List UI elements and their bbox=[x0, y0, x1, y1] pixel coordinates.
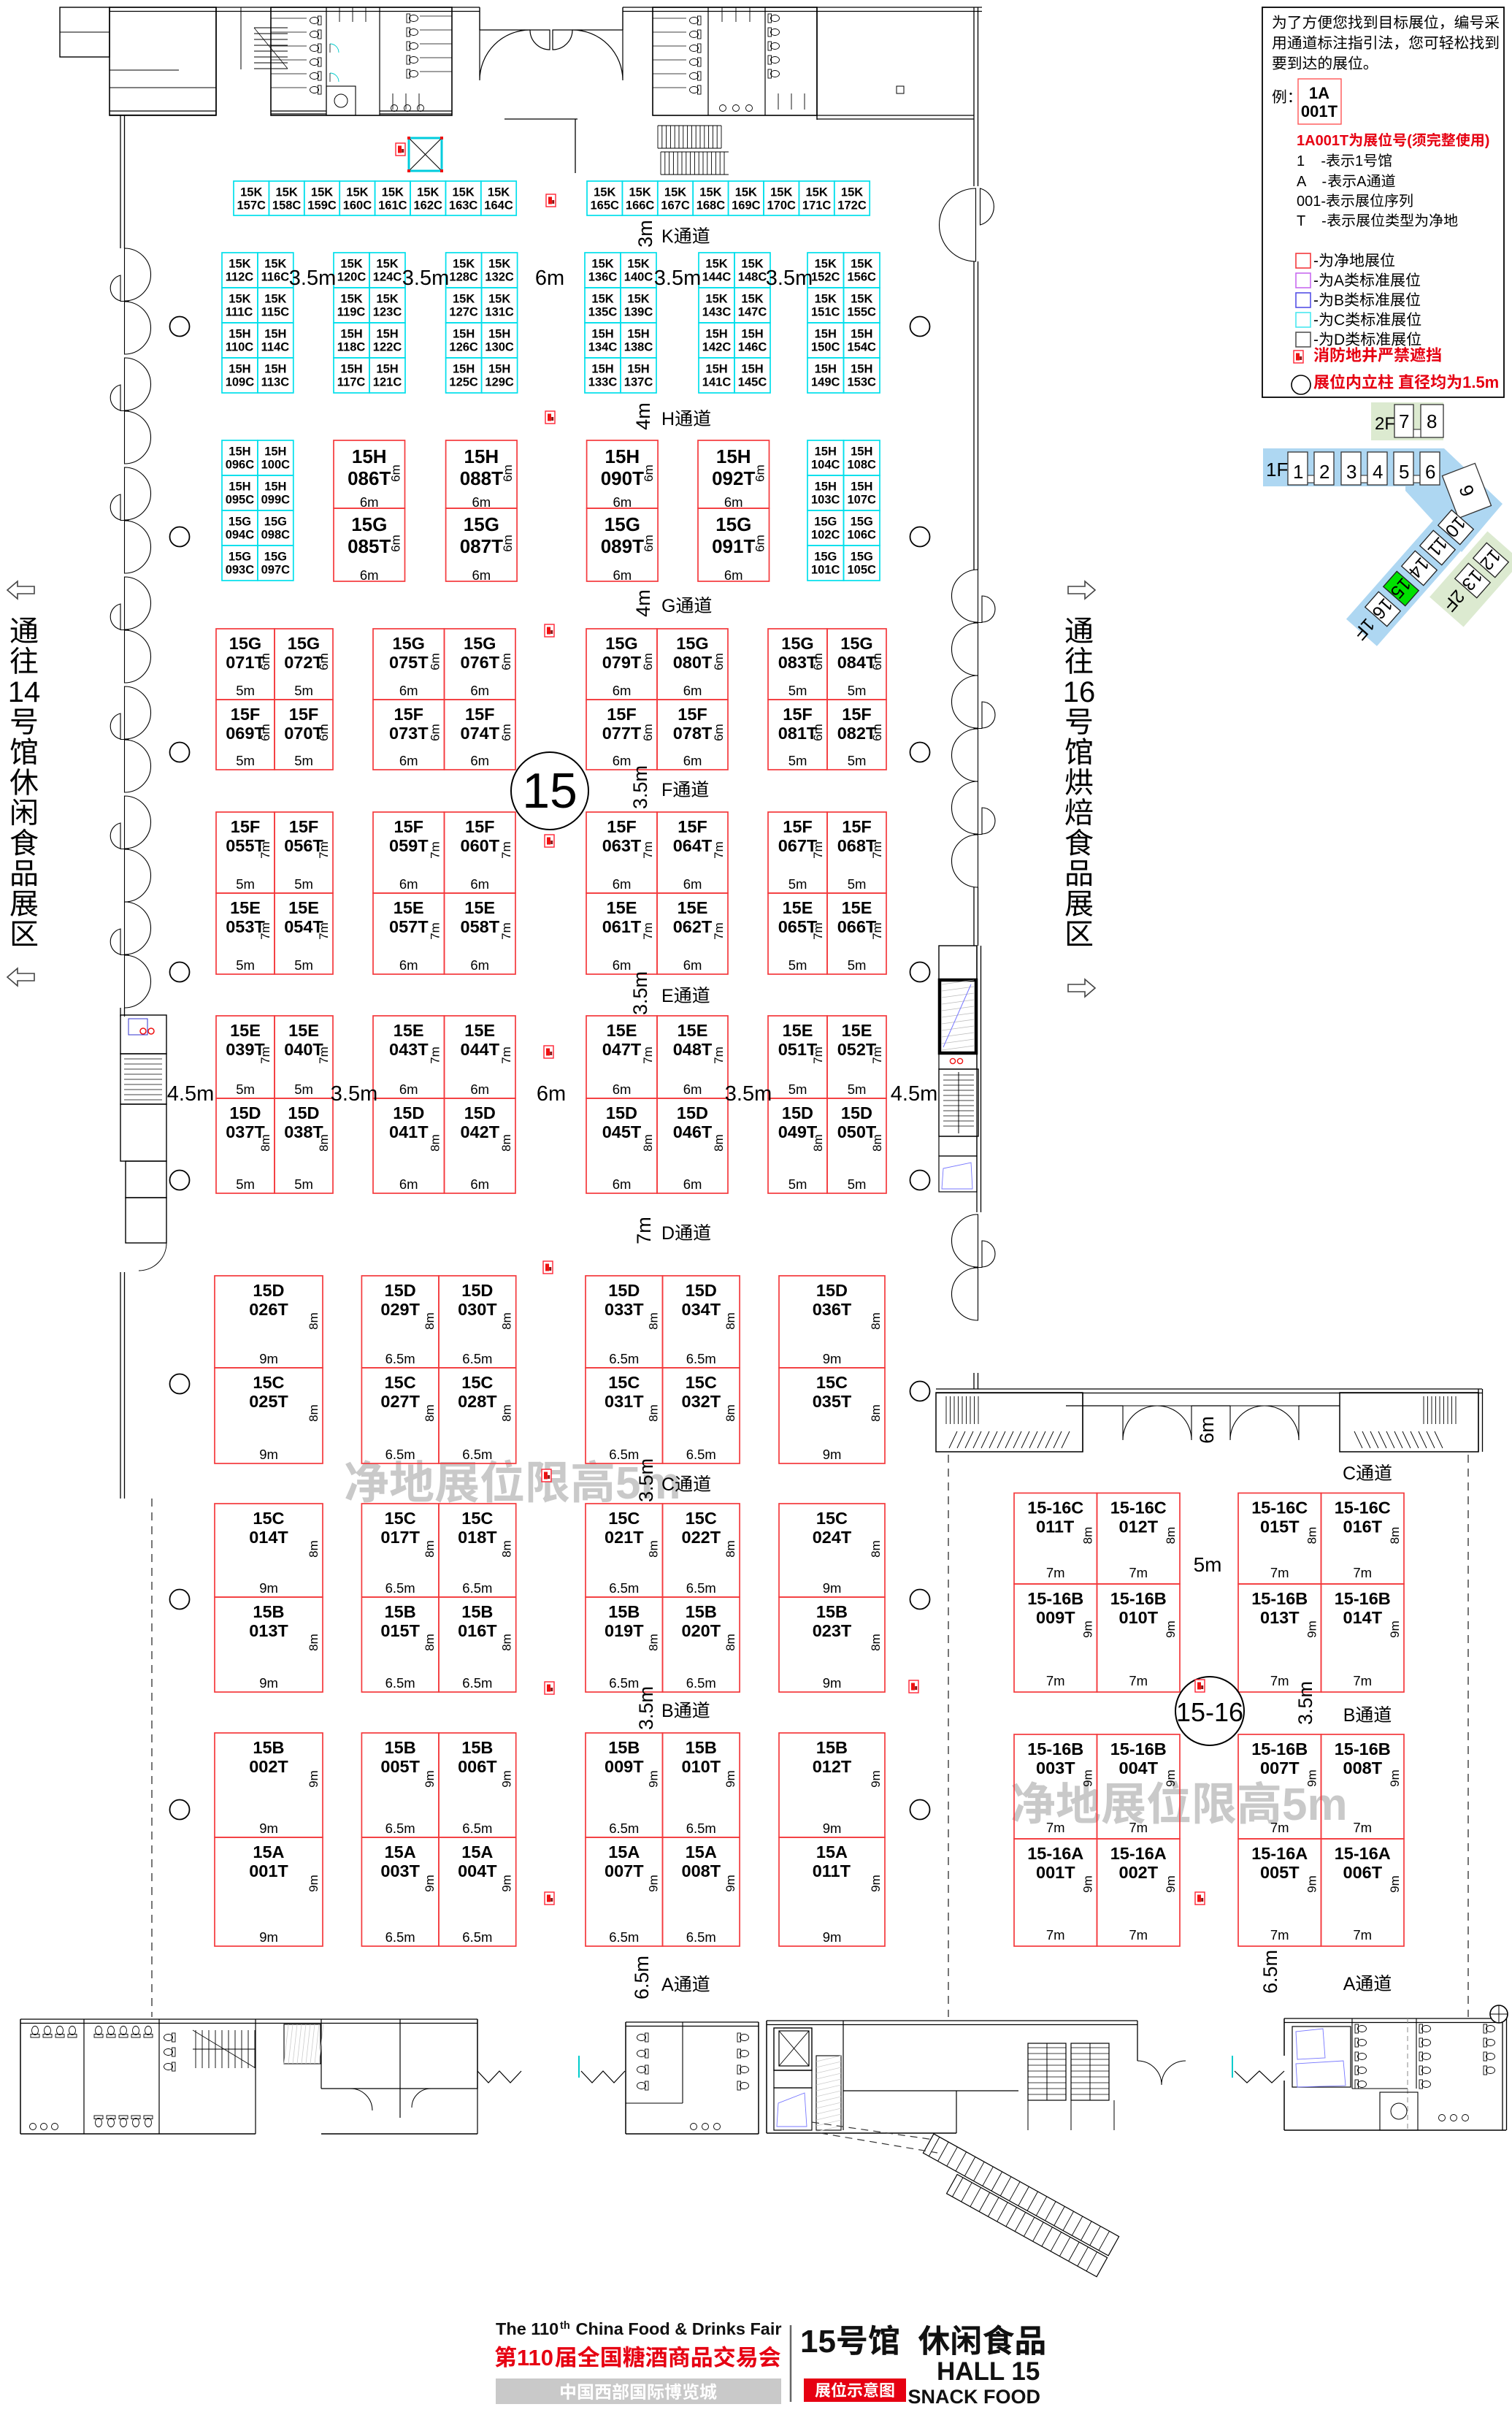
svg-text:5m: 5m bbox=[294, 753, 313, 768]
svg-text:6m: 6m bbox=[613, 1176, 632, 1192]
svg-text:123C: 123C bbox=[373, 306, 402, 319]
svg-text:15K: 15K bbox=[627, 293, 649, 306]
svg-text:9m: 9m bbox=[1305, 1875, 1319, 1893]
svg-text:8m: 8m bbox=[869, 1540, 883, 1558]
svg-text:7m: 7m bbox=[641, 922, 655, 940]
svg-text:137C: 137C bbox=[624, 376, 653, 389]
svg-text:B: B bbox=[661, 1701, 674, 1721]
svg-text:021T: 021T bbox=[605, 1528, 644, 1547]
svg-text:098C: 098C bbox=[261, 529, 291, 542]
svg-text:168C: 168C bbox=[696, 199, 726, 213]
svg-text:028T: 028T bbox=[458, 1392, 497, 1411]
svg-text:15-16A: 15-16A bbox=[1251, 1844, 1308, 1863]
svg-text:8m: 8m bbox=[647, 1540, 661, 1558]
svg-text:-: - bbox=[1313, 292, 1319, 309]
svg-text:6m: 6m bbox=[399, 683, 418, 698]
svg-text:1F: 1F bbox=[1266, 459, 1288, 481]
svg-text:4: 4 bbox=[1373, 461, 1383, 483]
svg-text:109C: 109C bbox=[226, 376, 255, 389]
svg-text:7m: 7m bbox=[1046, 1565, 1065, 1580]
svg-text:15C: 15C bbox=[686, 1373, 717, 1392]
svg-text:9m: 9m bbox=[259, 1675, 278, 1691]
svg-text:117C: 117C bbox=[337, 376, 366, 389]
svg-text:6.5m: 6.5m bbox=[385, 1675, 415, 1691]
svg-text:15B: 15B bbox=[461, 1602, 493, 1621]
svg-text:9m: 9m bbox=[823, 1447, 842, 1462]
svg-text:15D: 15D bbox=[782, 1103, 813, 1122]
svg-text:147C: 147C bbox=[738, 306, 767, 319]
svg-text:018T: 018T bbox=[458, 1528, 497, 1547]
svg-text:15E: 15E bbox=[842, 898, 872, 917]
svg-text:045T: 045T bbox=[602, 1122, 642, 1141]
svg-text:013T: 013T bbox=[249, 1621, 288, 1640]
svg-text:143C: 143C bbox=[702, 306, 732, 319]
svg-text:1A: 1A bbox=[1309, 84, 1329, 102]
svg-text:6m: 6m bbox=[613, 1082, 632, 1097]
svg-text:15G: 15G bbox=[229, 634, 261, 653]
svg-text:th: th bbox=[560, 2320, 570, 2332]
svg-text:15C: 15C bbox=[608, 1373, 640, 1392]
svg-text:15F: 15F bbox=[678, 705, 707, 724]
svg-text:15G: 15G bbox=[605, 634, 637, 653]
svg-text:C: C bbox=[1334, 312, 1345, 329]
svg-text:114C: 114C bbox=[261, 341, 290, 354]
svg-text:7m: 7m bbox=[1353, 1820, 1372, 1835]
svg-text:156C: 156C bbox=[848, 271, 877, 284]
svg-text:15D: 15D bbox=[253, 1281, 284, 1300]
svg-text:171C: 171C bbox=[802, 199, 832, 213]
svg-text:8m: 8m bbox=[1164, 1527, 1178, 1545]
svg-text:130C: 130C bbox=[485, 341, 514, 354]
svg-text:15C: 15C bbox=[608, 1509, 640, 1528]
svg-text:C: C bbox=[661, 1474, 675, 1495]
svg-text:3.5m: 3.5m bbox=[1294, 1681, 1316, 1725]
svg-text:157C: 157C bbox=[237, 199, 266, 213]
svg-text:8m: 8m bbox=[307, 1540, 321, 1558]
svg-text:8m: 8m bbox=[724, 1540, 737, 1558]
svg-text:6.5m: 6.5m bbox=[462, 1580, 492, 1596]
svg-text:6m: 6m bbox=[501, 464, 515, 482]
svg-text:5m: 5m bbox=[294, 957, 313, 973]
svg-text:5m: 5m bbox=[236, 753, 255, 768]
svg-text:15A: 15A bbox=[253, 1842, 284, 1861]
svg-text:15E: 15E bbox=[230, 898, 261, 917]
svg-text:15K: 15K bbox=[340, 258, 362, 271]
svg-text:7m: 7m bbox=[499, 841, 513, 859]
svg-text:15K: 15K bbox=[591, 293, 613, 306]
svg-text:103C: 103C bbox=[811, 494, 840, 507]
svg-text:7m: 7m bbox=[1270, 1565, 1289, 1580]
svg-text:075T: 075T bbox=[389, 653, 429, 672]
svg-text:6m: 6m bbox=[613, 753, 632, 768]
svg-text:007T: 007T bbox=[605, 1861, 644, 1880]
svg-text:15K: 15K bbox=[264, 293, 286, 306]
svg-text:7m: 7m bbox=[1270, 1673, 1289, 1688]
svg-text:15K: 15K bbox=[382, 186, 404, 199]
svg-text:15H: 15H bbox=[229, 328, 250, 341]
svg-text:8m: 8m bbox=[500, 1634, 514, 1651]
svg-text:15G: 15G bbox=[676, 634, 708, 653]
svg-text:15K: 15K bbox=[311, 186, 333, 199]
svg-text:15-16A: 15-16A bbox=[1335, 1844, 1391, 1863]
svg-text:A: A bbox=[1356, 174, 1367, 190]
svg-text:15K: 15K bbox=[591, 258, 613, 271]
svg-text:15G: 15G bbox=[814, 516, 837, 529]
svg-text:6m: 6m bbox=[389, 535, 403, 552]
svg-text:112C: 112C bbox=[226, 271, 254, 284]
svg-text:5m: 5m bbox=[294, 1082, 313, 1097]
svg-text:159C: 159C bbox=[307, 199, 337, 213]
svg-text:073T: 073T bbox=[389, 724, 429, 743]
svg-text:9m: 9m bbox=[1305, 1769, 1319, 1787]
svg-text:076T: 076T bbox=[461, 653, 500, 672]
svg-text:6m: 6m bbox=[811, 724, 825, 741]
svg-text:8m: 8m bbox=[500, 1404, 514, 1422]
svg-text:141C: 141C bbox=[702, 376, 732, 389]
svg-text:119C: 119C bbox=[337, 306, 366, 319]
svg-text:15B: 15B bbox=[686, 1602, 717, 1621]
svg-text:15-16B: 15-16B bbox=[1110, 1740, 1167, 1758]
svg-text:113C: 113C bbox=[261, 376, 290, 389]
svg-text:HALL 15: HALL 15 bbox=[937, 2357, 1040, 2386]
svg-text:004T: 004T bbox=[458, 1861, 497, 1880]
svg-text:15E: 15E bbox=[842, 1021, 872, 1040]
svg-text:15H: 15H bbox=[229, 445, 250, 459]
svg-text:019T: 019T bbox=[605, 1621, 644, 1640]
svg-text:060T: 060T bbox=[461, 836, 500, 855]
svg-text:6.5m: 6.5m bbox=[686, 1580, 716, 1596]
svg-text:8m: 8m bbox=[499, 1134, 513, 1152]
svg-text:086T: 086T bbox=[348, 467, 391, 489]
svg-text:15K: 15K bbox=[488, 293, 510, 306]
svg-text:15E: 15E bbox=[464, 1021, 495, 1040]
svg-text:003T: 003T bbox=[1036, 1758, 1075, 1777]
svg-text:020T: 020T bbox=[682, 1621, 721, 1640]
svg-text:15D: 15D bbox=[288, 1103, 319, 1122]
svg-text:15G: 15G bbox=[264, 516, 287, 529]
svg-text:7m: 7m bbox=[870, 1046, 884, 1064]
svg-text:15F: 15F bbox=[783, 705, 813, 724]
svg-text:6.5m: 6.5m bbox=[686, 1675, 716, 1691]
svg-text:T -: T - bbox=[1297, 213, 1327, 229]
svg-text:7m: 7m bbox=[712, 1046, 726, 1064]
svg-text:15F: 15F bbox=[231, 705, 261, 724]
svg-text:079T: 079T bbox=[602, 653, 642, 672]
svg-text:166C: 166C bbox=[626, 199, 655, 213]
svg-text:15B: 15B bbox=[385, 1738, 416, 1757]
svg-text:6m: 6m bbox=[811, 653, 825, 670]
svg-text:5m: 5m bbox=[294, 1176, 313, 1192]
svg-text:9m: 9m bbox=[500, 1875, 514, 1892]
svg-text:6m: 6m bbox=[317, 653, 331, 670]
svg-text:15H: 15H bbox=[591, 363, 613, 376]
svg-text:6.5m: 6.5m bbox=[385, 1580, 415, 1596]
svg-text:6: 6 bbox=[1425, 461, 1435, 483]
svg-text:6m: 6m bbox=[641, 724, 655, 741]
svg-text:9m: 9m bbox=[823, 1675, 842, 1691]
svg-text:15C: 15C bbox=[253, 1509, 284, 1528]
svg-text:15-16C: 15-16C bbox=[1335, 1499, 1391, 1517]
svg-text:032T: 032T bbox=[682, 1392, 721, 1411]
svg-text:064T: 064T bbox=[673, 836, 713, 855]
svg-text:7m: 7m bbox=[811, 1046, 825, 1064]
svg-text:042T: 042T bbox=[461, 1122, 500, 1141]
svg-text:15G: 15G bbox=[229, 516, 251, 529]
svg-text:7m: 7m bbox=[641, 1046, 655, 1064]
svg-text:15F: 15F bbox=[783, 817, 813, 836]
svg-text:6m: 6m bbox=[613, 957, 632, 973]
svg-text:15K: 15K bbox=[340, 293, 362, 306]
svg-text:121C: 121C bbox=[373, 376, 402, 389]
svg-text:15H: 15H bbox=[453, 328, 475, 341]
svg-text:1: 1 bbox=[1355, 153, 1363, 169]
svg-text:14: 14 bbox=[8, 676, 41, 708]
svg-text:15H: 15H bbox=[464, 445, 499, 467]
svg-text:9m: 9m bbox=[500, 1770, 514, 1788]
svg-text:6m: 6m bbox=[499, 653, 513, 670]
svg-text:6.5m: 6.5m bbox=[462, 1675, 492, 1691]
svg-text:G: G bbox=[661, 596, 675, 616]
svg-text:15K: 15K bbox=[741, 293, 763, 306]
svg-text:6.5m: 6.5m bbox=[609, 1580, 639, 1596]
svg-text:15-16B: 15-16B bbox=[1251, 1589, 1308, 1608]
svg-text:1: 1 bbox=[1293, 461, 1303, 483]
svg-text:15K: 15K bbox=[488, 186, 510, 199]
svg-text:7m: 7m bbox=[1353, 1673, 1372, 1688]
svg-text:9m: 9m bbox=[423, 1875, 437, 1892]
svg-text:15E: 15E bbox=[783, 898, 813, 917]
svg-text:138C: 138C bbox=[624, 341, 653, 354]
svg-text:A: A bbox=[1343, 1974, 1356, 1994]
svg-text:7m: 7m bbox=[499, 922, 513, 940]
svg-text:016T: 016T bbox=[1343, 1517, 1383, 1536]
svg-text:010T: 010T bbox=[682, 1757, 721, 1776]
svg-text:9m: 9m bbox=[647, 1770, 661, 1788]
svg-text:15E: 15E bbox=[394, 898, 424, 917]
svg-text:15-16B: 15-16B bbox=[1027, 1589, 1083, 1608]
svg-text:8m: 8m bbox=[423, 1634, 437, 1651]
svg-text:5m: 5m bbox=[294, 876, 313, 892]
svg-text:15E: 15E bbox=[783, 1021, 813, 1040]
svg-text:5: 5 bbox=[1399, 461, 1409, 483]
svg-text:9m: 9m bbox=[1081, 1769, 1095, 1787]
svg-text:8m: 8m bbox=[870, 1134, 884, 1152]
svg-text:15F: 15F bbox=[842, 817, 872, 836]
svg-text:8m: 8m bbox=[317, 1134, 331, 1152]
svg-text:15D: 15D bbox=[841, 1103, 872, 1122]
svg-text:6m: 6m bbox=[613, 876, 632, 892]
svg-text:170C: 170C bbox=[767, 199, 797, 213]
svg-text:128C: 128C bbox=[449, 271, 478, 284]
svg-text:6m: 6m bbox=[753, 464, 767, 482]
svg-text:102C: 102C bbox=[811, 529, 840, 542]
svg-text:036T: 036T bbox=[813, 1300, 852, 1319]
svg-text:15C: 15C bbox=[385, 1373, 416, 1392]
svg-text:009T: 009T bbox=[1036, 1608, 1075, 1627]
svg-text:15H: 15H bbox=[627, 363, 649, 376]
svg-text:6.5m: 6.5m bbox=[385, 1447, 415, 1462]
svg-text:033T: 033T bbox=[605, 1300, 644, 1319]
svg-text:002T: 002T bbox=[249, 1757, 288, 1776]
svg-text:15: 15 bbox=[522, 763, 577, 819]
svg-text:006T: 006T bbox=[458, 1757, 497, 1776]
svg-text:118C: 118C bbox=[337, 341, 366, 354]
svg-text:15E: 15E bbox=[288, 898, 319, 917]
svg-text:088T: 088T bbox=[460, 467, 503, 489]
svg-text:A -: A - bbox=[1297, 174, 1327, 190]
svg-text:7m: 7m bbox=[1129, 1820, 1148, 1835]
svg-text:15G: 15G bbox=[781, 634, 813, 653]
svg-text:15A: 15A bbox=[816, 1842, 848, 1861]
svg-text:15H: 15H bbox=[851, 328, 872, 341]
svg-text:136C: 136C bbox=[588, 271, 618, 284]
svg-text:15K: 15K bbox=[699, 186, 721, 199]
svg-text:6m: 6m bbox=[870, 653, 884, 670]
svg-text:008T: 008T bbox=[1343, 1758, 1383, 1777]
svg-text:047T: 047T bbox=[602, 1040, 642, 1059]
svg-text:095C: 095C bbox=[226, 494, 255, 507]
svg-text:15H: 15H bbox=[705, 328, 727, 341]
svg-text:7m: 7m bbox=[1046, 1820, 1065, 1835]
svg-text:15K: 15K bbox=[276, 186, 298, 199]
svg-text:15K: 15K bbox=[594, 186, 615, 199]
svg-text:011T: 011T bbox=[1036, 1517, 1075, 1536]
svg-text:6.5m: 6.5m bbox=[462, 1351, 492, 1366]
svg-text:8m: 8m bbox=[307, 1634, 321, 1651]
svg-text:7m: 7m bbox=[258, 922, 272, 940]
svg-text:1.5m: 1.5m bbox=[1462, 373, 1499, 391]
svg-text:F: F bbox=[661, 780, 672, 800]
svg-text:15H: 15H bbox=[488, 363, 510, 376]
svg-text:5m: 5m bbox=[236, 1082, 255, 1097]
svg-text:044T: 044T bbox=[461, 1040, 500, 1059]
svg-text:15H: 15H bbox=[815, 328, 837, 341]
svg-text:15G: 15G bbox=[229, 551, 251, 564]
svg-text:7: 7 bbox=[1399, 410, 1409, 432]
svg-text:101C: 101C bbox=[811, 564, 840, 577]
svg-text:3.5m: 3.5m bbox=[654, 267, 701, 290]
svg-text:7m: 7m bbox=[1046, 1673, 1065, 1688]
svg-text:6m: 6m bbox=[683, 957, 702, 973]
svg-text:8m: 8m bbox=[869, 1634, 883, 1651]
svg-text:15A: 15A bbox=[686, 1842, 717, 1861]
svg-text:023T: 023T bbox=[813, 1621, 852, 1640]
svg-text:099C: 099C bbox=[261, 494, 291, 507]
svg-text:5m: 5m bbox=[1194, 1553, 1222, 1576]
svg-text:015T: 015T bbox=[380, 1621, 420, 1640]
svg-text:-: - bbox=[1313, 272, 1319, 289]
svg-text:142C: 142C bbox=[702, 341, 732, 354]
svg-text:043T: 043T bbox=[389, 1040, 429, 1059]
svg-text:6.5m: 6.5m bbox=[686, 1447, 716, 1462]
svg-text:8m: 8m bbox=[724, 1634, 737, 1651]
svg-text:D: D bbox=[661, 1223, 675, 1244]
svg-text:15K: 15K bbox=[806, 186, 828, 199]
svg-text:005T: 005T bbox=[380, 1757, 420, 1776]
svg-text:026T: 026T bbox=[249, 1300, 288, 1319]
svg-text:058T: 058T bbox=[461, 917, 500, 936]
svg-text:15K: 15K bbox=[735, 186, 757, 199]
svg-text:8m: 8m bbox=[423, 1540, 437, 1558]
svg-text:7m: 7m bbox=[1129, 1927, 1148, 1943]
svg-text:7m: 7m bbox=[633, 1217, 655, 1244]
svg-text:15H: 15H bbox=[453, 363, 475, 376]
svg-text:6m: 6m bbox=[642, 464, 656, 482]
svg-text:(: ( bbox=[1407, 133, 1412, 149]
svg-text:7m: 7m bbox=[258, 841, 272, 859]
svg-text:148C: 148C bbox=[738, 271, 767, 284]
svg-text:15F: 15F bbox=[231, 817, 261, 836]
svg-text:15H: 15H bbox=[340, 363, 362, 376]
svg-text:15A: 15A bbox=[461, 1842, 493, 1861]
svg-text:8m: 8m bbox=[869, 1312, 883, 1330]
svg-text:111C: 111C bbox=[226, 306, 253, 319]
svg-text:107C: 107C bbox=[848, 494, 877, 507]
svg-text:5m: 5m bbox=[236, 876, 255, 892]
svg-text:5m: 5m bbox=[788, 1176, 807, 1192]
svg-text:133C: 133C bbox=[588, 376, 618, 389]
svg-text:134C: 134C bbox=[588, 341, 618, 354]
svg-text:7m: 7m bbox=[317, 1046, 331, 1064]
svg-text:105C: 105C bbox=[848, 564, 877, 577]
svg-text:15H: 15H bbox=[340, 328, 362, 341]
svg-text:1A001T: 1A001T bbox=[1297, 133, 1348, 149]
svg-text:6m: 6m bbox=[712, 724, 726, 741]
svg-text:15H: 15H bbox=[741, 363, 763, 376]
svg-text:15-16B: 15-16B bbox=[1110, 1589, 1167, 1608]
svg-text:6m: 6m bbox=[683, 1176, 702, 1192]
svg-text:007T: 007T bbox=[1260, 1758, 1300, 1777]
svg-text:15B: 15B bbox=[608, 1602, 640, 1621]
svg-text:15A: 15A bbox=[385, 1842, 416, 1861]
svg-text:167C: 167C bbox=[661, 199, 690, 213]
svg-text:15K: 15K bbox=[841, 186, 863, 199]
svg-text:6m: 6m bbox=[683, 1082, 702, 1097]
svg-text:H: H bbox=[661, 409, 675, 429]
svg-text:034T: 034T bbox=[682, 1300, 721, 1319]
svg-text:017T: 017T bbox=[380, 1528, 420, 1547]
svg-text:15H: 15H bbox=[716, 445, 751, 467]
svg-text:15A: 15A bbox=[608, 1842, 640, 1861]
svg-text:027T: 027T bbox=[380, 1392, 420, 1411]
svg-text:025T: 025T bbox=[249, 1392, 288, 1411]
svg-text:9m: 9m bbox=[1164, 1620, 1178, 1638]
svg-text:C: C bbox=[1343, 1463, 1356, 1484]
svg-text:127C: 127C bbox=[449, 306, 478, 319]
svg-text:8m: 8m bbox=[724, 1312, 737, 1330]
svg-text:15C: 15C bbox=[461, 1373, 493, 1392]
svg-text:154C: 154C bbox=[848, 341, 877, 354]
svg-text:059T: 059T bbox=[389, 836, 429, 855]
svg-text:15E: 15E bbox=[678, 898, 708, 917]
svg-text:7m: 7m bbox=[1353, 1565, 1372, 1580]
svg-text:6m: 6m bbox=[429, 724, 442, 741]
svg-text:3.5m: 3.5m bbox=[635, 1458, 657, 1502]
svg-text:3.5m: 3.5m bbox=[725, 1082, 772, 1106]
svg-text:9m: 9m bbox=[1388, 1875, 1402, 1893]
svg-text:): ) bbox=[1485, 133, 1490, 149]
svg-text:15C: 15C bbox=[385, 1509, 416, 1528]
svg-text:15E: 15E bbox=[464, 898, 495, 917]
svg-text:6.5m: 6.5m bbox=[462, 1929, 492, 1945]
svg-text:15K: 15K bbox=[705, 293, 727, 306]
svg-text:15F: 15F bbox=[289, 817, 319, 836]
svg-text:9m: 9m bbox=[1388, 1620, 1402, 1638]
svg-text:8m: 8m bbox=[647, 1312, 661, 1330]
svg-text:15H: 15H bbox=[376, 363, 398, 376]
svg-text:15B: 15B bbox=[385, 1602, 416, 1621]
svg-text:15K: 15K bbox=[627, 258, 649, 271]
